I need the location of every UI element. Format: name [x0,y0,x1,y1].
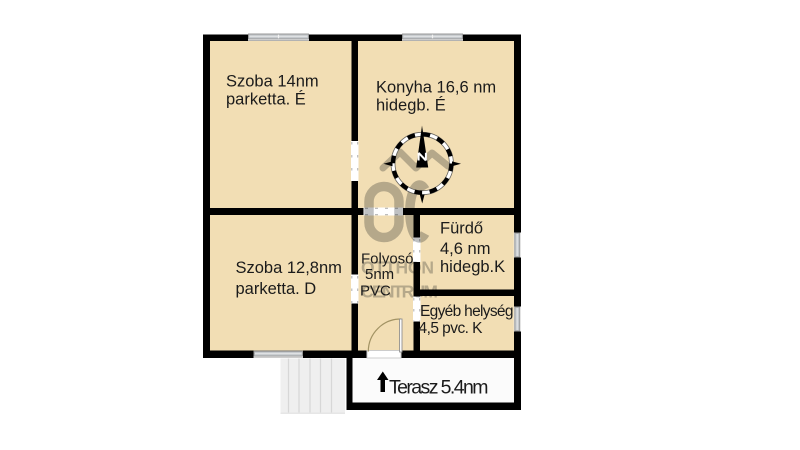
svg-text:5nm: 5nm [365,266,394,283]
svg-text:parketta. É: parketta. É [226,90,306,109]
svg-text:hidegb.K: hidegb.K [440,258,505,276]
svg-text:PVC: PVC [360,283,391,300]
svg-text:Terasz 5.4nm: Terasz 5.4nm [389,377,489,399]
svg-text:Fürdő: Fürdő [440,220,483,238]
svg-text:Szoba 12,8nm: Szoba 12,8nm [236,259,342,277]
svg-text:4,6 nm: 4,6 nm [440,240,490,258]
svg-text:Egyéb helység: Egyéb helység [420,303,514,320]
svg-text:Szoba 14nm: Szoba 14nm [226,73,319,91]
svg-text:parketta. D: parketta. D [236,280,317,298]
svg-text:Folyosó: Folyosó [361,251,414,268]
svg-text:4,5 pvc. K: 4,5 pvc. K [419,320,484,337]
svg-text:Konyha 16,6 nm: Konyha 16,6 nm [376,79,496,97]
svg-text:hidegb. É: hidegb. É [376,96,446,115]
